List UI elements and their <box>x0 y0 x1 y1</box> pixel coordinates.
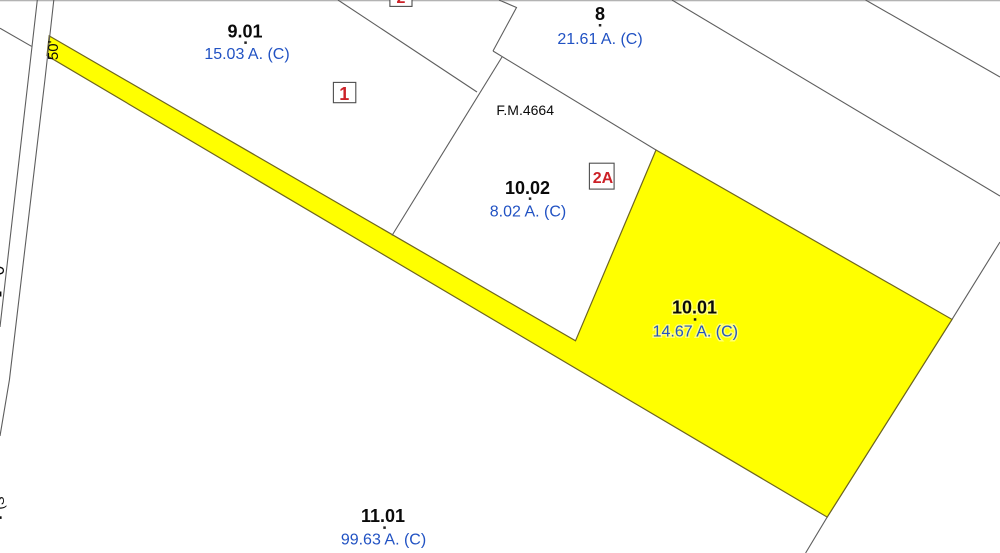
svg-text:2: 2 <box>396 0 405 7</box>
svg-text:9.01: 9.01 <box>227 21 262 41</box>
svg-text:11.01: 11.01 <box>361 506 405 526</box>
svg-text:21.61 A. (C): 21.61 A. (C) <box>557 31 642 48</box>
svg-text:15.03 A. (C): 15.03 A. (C) <box>204 46 289 63</box>
svg-text:10.02: 10.02 <box>505 178 550 198</box>
svg-text:99.63 A. (C): 99.63 A. (C) <box>341 531 426 548</box>
svg-text:(S: (S <box>0 496 7 509</box>
svg-text:8.02 A. (C): 8.02 A. (C) <box>490 204 566 221</box>
svg-text:8: 8 <box>595 4 605 24</box>
svg-text:0: 0 <box>0 266 8 275</box>
svg-text:1: 1 <box>339 84 349 104</box>
svg-text:50': 50' <box>45 40 62 60</box>
svg-text:F.M.4664: F.M.4664 <box>496 102 554 118</box>
svg-text:10.01: 10.01 <box>672 298 717 318</box>
svg-text:14.67 A. (C): 14.67 A. (C) <box>653 324 738 341</box>
svg-text:2A: 2A <box>593 170 614 187</box>
